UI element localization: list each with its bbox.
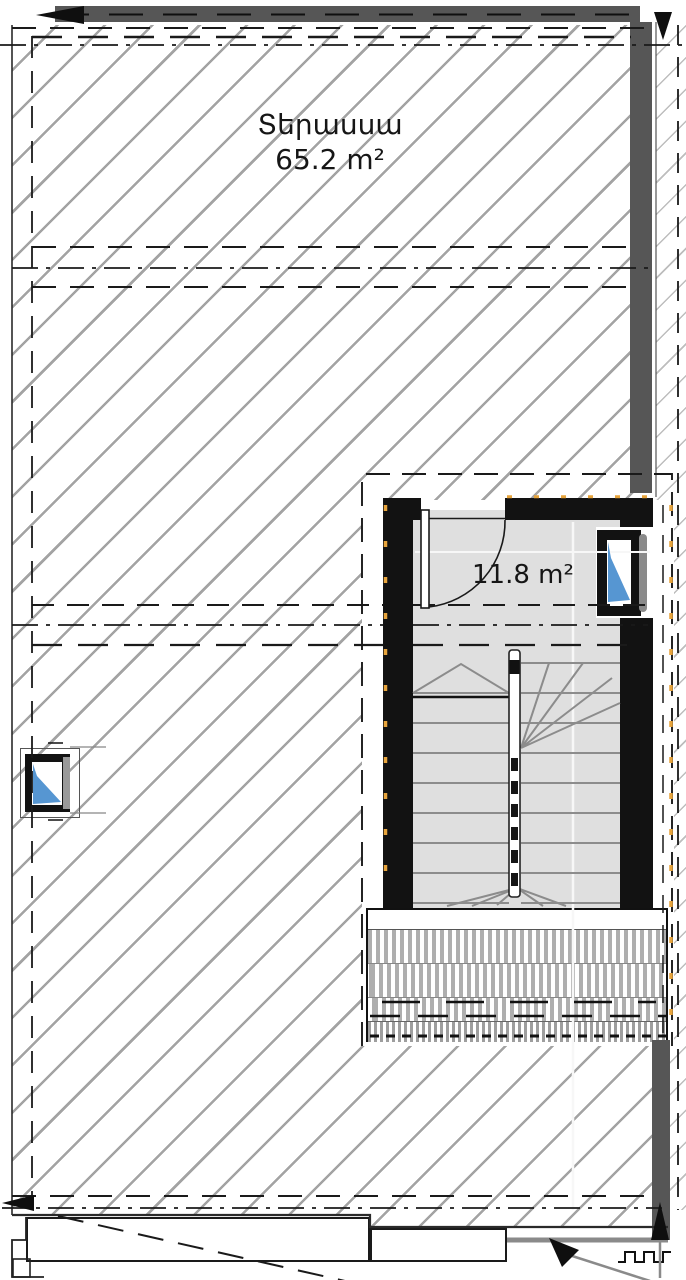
- right-margin-hatch-top: [656, 25, 686, 500]
- window-left-shutter-rail: [63, 757, 70, 809]
- floor-plan-canvas: Տերասսա 65.2 m² 11.8 m²: [0, 0, 686, 1280]
- bottom-band-left: [26, 1217, 370, 1262]
- top-parapet-wall: [55, 6, 640, 22]
- castellated-edge: [618, 1252, 671, 1262]
- right-margin-hatch-mid: [673, 500, 686, 1046]
- louver-grate: [366, 908, 668, 1042]
- stairwell-left-wall: [383, 498, 413, 908]
- louver-top-band: [368, 910, 666, 930]
- terrace-area-label: 65.2 m²: [230, 143, 430, 176]
- window-right-shutter-rail: [639, 534, 647, 612]
- bottom-band-right: [370, 1228, 507, 1262]
- stairwell-right-wall-lower: [620, 618, 653, 908]
- right-parapet-wall-upper: [630, 22, 652, 493]
- louver-row-1: [368, 930, 666, 963]
- stairwell-area-label: 11.8 m²: [472, 560, 574, 590]
- annotation-arrow-icon: [549, 1238, 579, 1267]
- louver-row-3: [368, 997, 666, 1021]
- stairwell-right-wall-upper: [620, 498, 653, 527]
- right-parapet-wall-lower: [652, 1040, 670, 1240]
- window-right-pane: [607, 540, 631, 606]
- terrace-name-label: Տերասսա: [230, 108, 430, 141]
- louver-row-4: [368, 1021, 666, 1042]
- door-jamb-left: [413, 498, 421, 520]
- louver-row-2: [368, 963, 666, 997]
- window-left-pane: [32, 762, 62, 805]
